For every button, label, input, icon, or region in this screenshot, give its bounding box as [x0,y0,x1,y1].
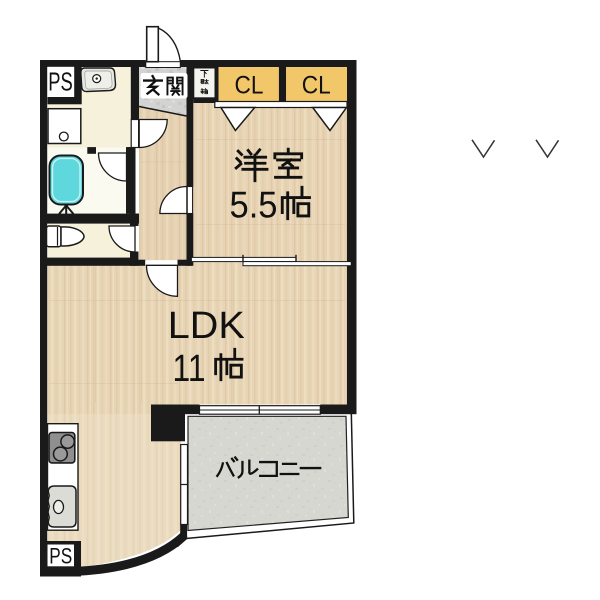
svg-text:CL: CL [302,72,331,100]
svg-text:PS: PS [48,67,72,97]
svg-text:11: 11 [173,348,206,390]
svg-text:CL: CL [235,72,264,100]
svg-text:5.5: 5.5 [230,184,278,226]
svg-text:LDK: LDK [168,305,245,347]
svg-text:PS: PS [49,544,72,569]
